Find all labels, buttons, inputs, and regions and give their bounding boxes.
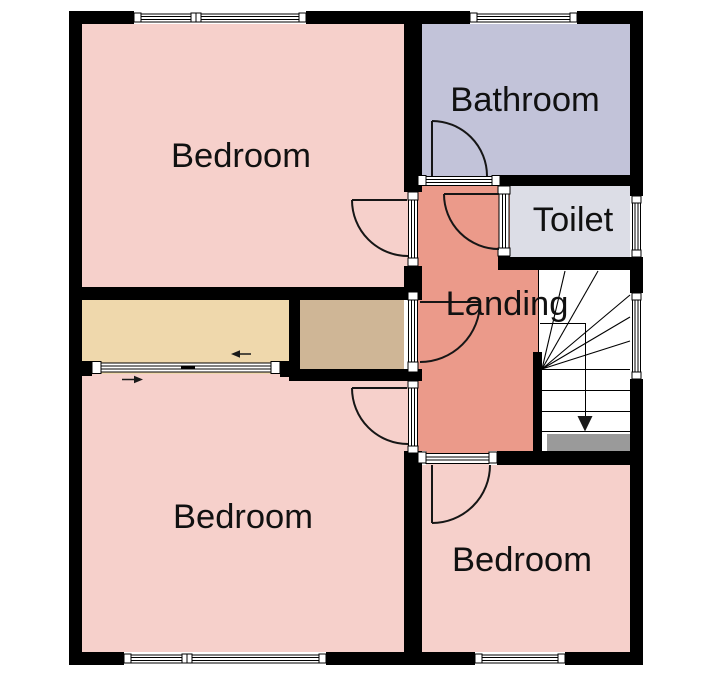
svg-text:Bedroom: Bedroom xyxy=(452,541,592,579)
svg-text:Bedroom: Bedroom xyxy=(173,498,313,536)
svg-text:Bathroom: Bathroom xyxy=(450,81,600,119)
svg-text:Bedroom: Bedroom xyxy=(171,137,311,175)
svg-text:Toilet: Toilet xyxy=(533,201,614,239)
svg-text:Landing: Landing xyxy=(446,285,569,323)
